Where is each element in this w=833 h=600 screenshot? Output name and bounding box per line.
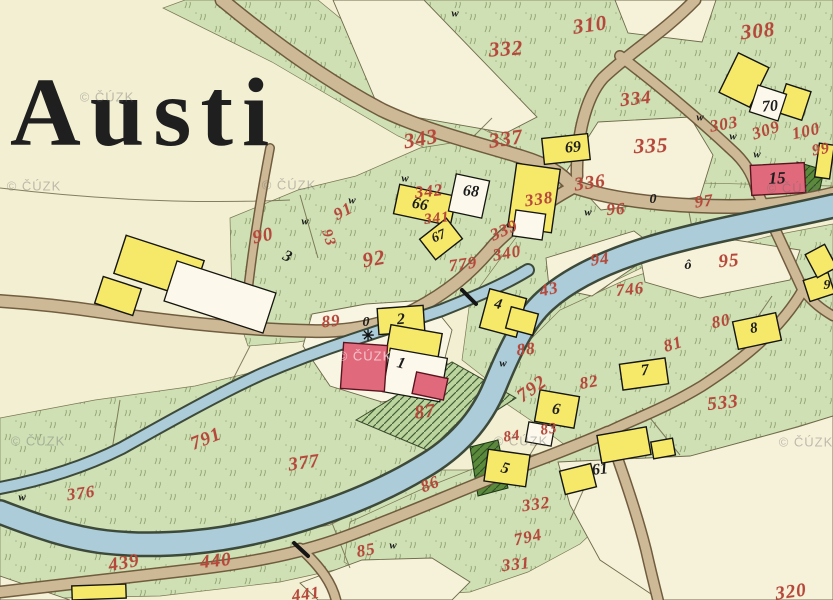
building-wood-61b — [651, 438, 676, 459]
place-name-label: Austi — [10, 64, 278, 162]
building-wood-69 — [542, 134, 590, 165]
building-wood-bottom — [72, 584, 126, 600]
building-wood-5 — [484, 449, 530, 487]
building-wood-6 — [535, 390, 580, 428]
building-wood-7 — [619, 358, 668, 390]
building-masonry-1 — [340, 343, 387, 392]
building-other-6-annex — [525, 422, 554, 446]
building-other-68 — [448, 174, 489, 218]
building-masonry-15 — [750, 163, 805, 196]
building-other-339 — [512, 210, 545, 240]
cadastral-map: Austi 3103323083343033091009934333733533… — [0, 0, 833, 600]
